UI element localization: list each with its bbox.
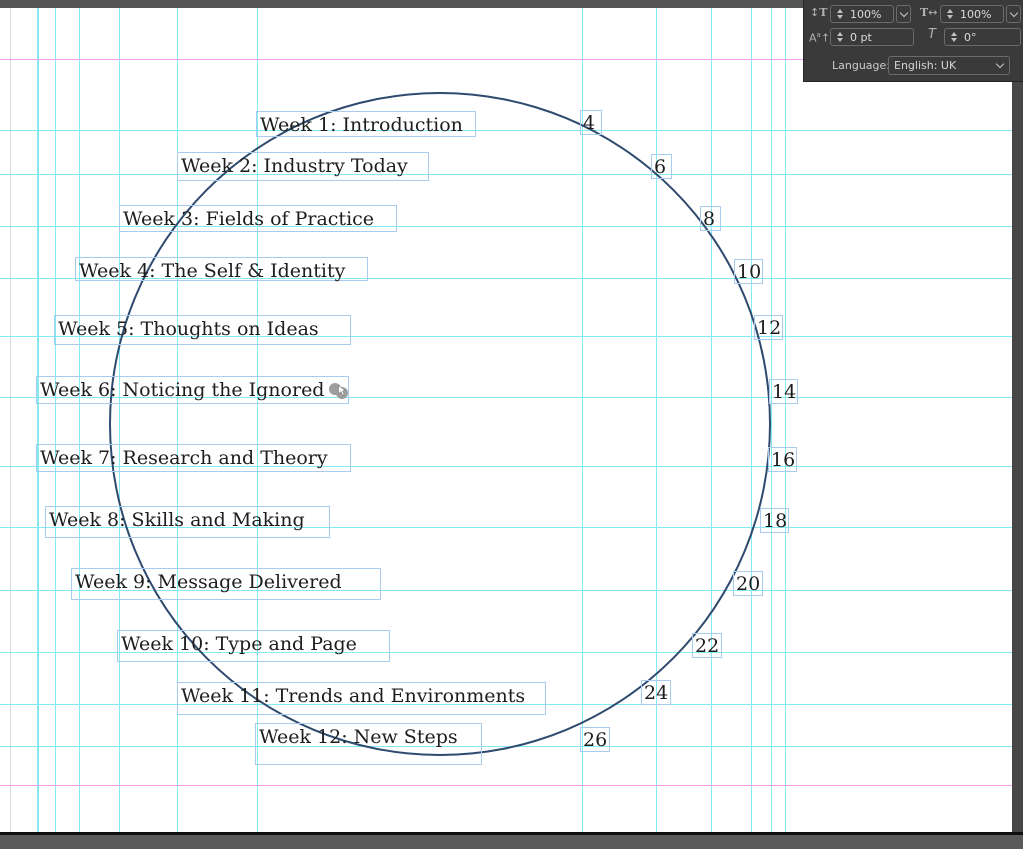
week-text-frame[interactable]: Week 9: Message Delivered xyxy=(71,568,381,600)
skew-icon: T xyxy=(928,29,936,40)
content-grabber-cursor xyxy=(326,381,352,405)
baseline-shift-value[interactable]: 0 pt xyxy=(846,31,872,44)
week-text-frame[interactable]: Week 2: Industry Today xyxy=(177,152,429,181)
week-text-frame[interactable]: Week 8: Skills and Making xyxy=(45,506,330,538)
page-number-frame[interactable]: 24 xyxy=(641,680,671,705)
week-text-frame[interactable]: Week 11: Trends and Environments xyxy=(177,682,546,715)
vertical-guide[interactable] xyxy=(771,8,772,833)
page-number-frame[interactable]: 22 xyxy=(692,633,722,658)
window-bottom-bar xyxy=(0,835,1023,849)
skew-value[interactable]: 0° xyxy=(960,31,977,44)
page-number-frame[interactable]: 8 xyxy=(700,206,721,231)
week-text-frame[interactable]: Week 12: New Steps xyxy=(255,723,482,765)
page-number-frame[interactable]: 6 xyxy=(651,154,672,179)
horizontal-scale-value[interactable]: 100% xyxy=(956,8,991,21)
horizontal-scale-field[interactable]: 100% xyxy=(940,5,1004,23)
vertical-scale-field[interactable]: 100% xyxy=(830,5,894,23)
week-text-frame[interactable]: Week 10: Type and Page xyxy=(117,630,390,662)
week-text-frame[interactable]: Week 6: Noticing the Ignored xyxy=(36,376,349,404)
language-label: Language: xyxy=(832,59,890,72)
horizontal-scale-dropdown[interactable] xyxy=(1006,5,1021,23)
vertical-scale-dropdown[interactable] xyxy=(896,5,911,23)
language-value: English: UK xyxy=(894,59,956,72)
page-number-frame[interactable]: 26 xyxy=(580,727,610,752)
language-dropdown[interactable]: English: UK xyxy=(888,56,1010,75)
page-number-frame[interactable]: 14 xyxy=(769,379,798,404)
horizontal-scale-icon: T↔ xyxy=(920,7,937,18)
week-text-frame[interactable]: Week 1: Introduction xyxy=(256,111,476,137)
baseline-shift-icon: Aa↑ xyxy=(809,30,830,44)
vertical-guide[interactable] xyxy=(37,8,39,833)
vertical-scale-stepper[interactable] xyxy=(831,9,846,19)
page-number-frame[interactable]: 20 xyxy=(733,571,763,596)
chevron-down-icon xyxy=(996,60,1004,68)
page-number-frame[interactable]: 18 xyxy=(760,508,789,533)
chevron-down-icon xyxy=(1009,8,1017,16)
vertical-guide[interactable] xyxy=(79,8,80,833)
page-number-frame[interactable]: 10 xyxy=(734,259,763,284)
page-number-frame[interactable]: 12 xyxy=(754,315,783,340)
character-control-panel: ↕T 100% T↔ 100% Aa↑ 0 pt T 0° Language: … xyxy=(803,0,1023,82)
vertical-scale-value[interactable]: 100% xyxy=(846,8,881,21)
page-number-frame[interactable]: 16 xyxy=(768,447,797,472)
indesign-workspace: Week 1: IntroductionWeek 2: Industry Tod… xyxy=(0,0,1023,849)
pasteboard-right-edge xyxy=(1012,8,1023,849)
page-edge-line xyxy=(10,8,11,833)
vertical-scale-icon: ↕T xyxy=(810,7,827,18)
week-text-frame[interactable]: Week 7: Research and Theory xyxy=(36,444,351,472)
week-text-frame[interactable]: Week 3: Fields of Practice xyxy=(119,205,397,232)
vertical-guide[interactable] xyxy=(785,8,786,833)
baseline-shift-field[interactable]: 0 pt xyxy=(830,28,914,46)
baseline-shift-stepper[interactable] xyxy=(831,32,846,42)
skew-field[interactable]: 0° xyxy=(944,28,1021,46)
chevron-down-icon xyxy=(899,8,907,16)
vertical-guide[interactable] xyxy=(55,8,56,833)
week-text-frame[interactable]: Week 5: Thoughts on Ideas xyxy=(54,315,351,345)
horizontal-scale-stepper[interactable] xyxy=(941,9,956,19)
skew-stepper[interactable] xyxy=(945,32,960,42)
week-text-frame[interactable]: Week 4: The Self & Identity xyxy=(75,257,368,281)
page-number-frame[interactable]: 4 xyxy=(580,110,602,135)
margin-guide[interactable] xyxy=(0,785,1012,786)
